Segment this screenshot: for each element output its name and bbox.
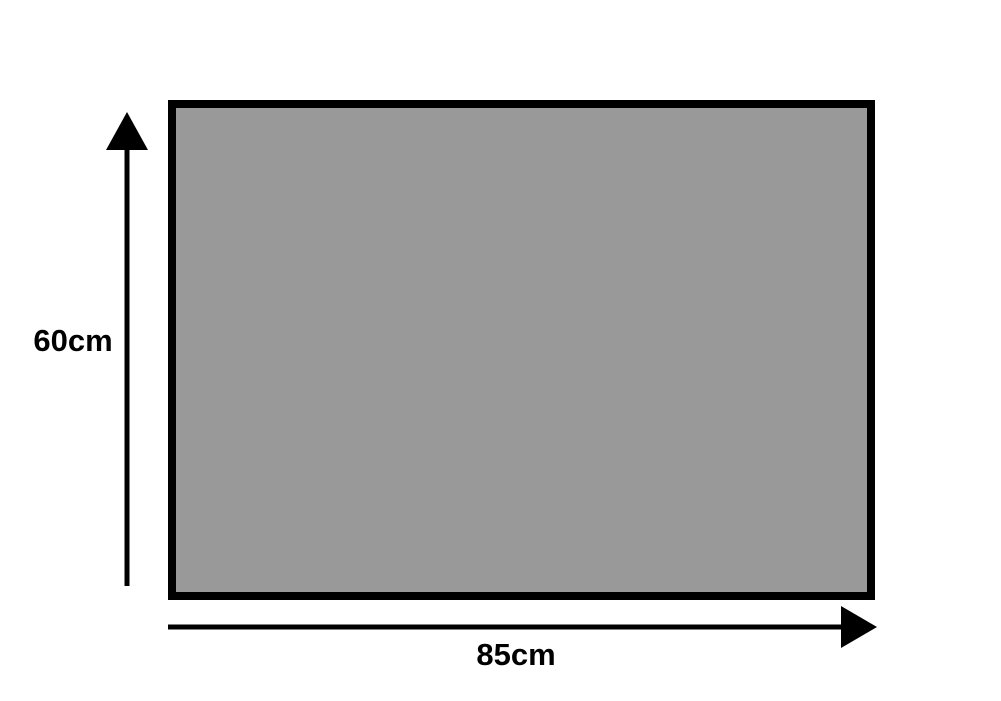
dimension-diagram: 60cm 85cm [0, 0, 1001, 701]
diagram-canvas: 60cm 85cm [0, 0, 1001, 701]
rectangle-shape [172, 104, 871, 596]
width-label: 85cm [476, 637, 555, 672]
height-label: 60cm [33, 323, 112, 358]
up-arrowhead-icon [106, 112, 148, 150]
right-arrowhead-icon [841, 606, 877, 648]
